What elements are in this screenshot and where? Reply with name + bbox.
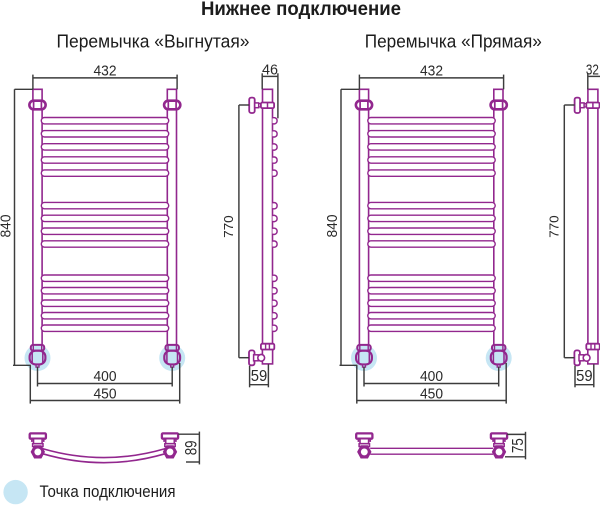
svg-text:59: 59 <box>251 368 268 385</box>
svg-text:770: 770 <box>222 215 236 238</box>
svg-text:400: 400 <box>94 368 117 385</box>
svg-text:32: 32 <box>586 62 599 79</box>
svg-text:432: 432 <box>94 62 117 79</box>
svg-text:770: 770 <box>547 215 561 238</box>
svg-text:Точка подключения: Точка подключения <box>40 482 176 501</box>
svg-text:400: 400 <box>420 368 443 385</box>
svg-text:450: 450 <box>94 386 117 403</box>
svg-text:Перемычка «Выгнутая»: Перемычка «Выгнутая» <box>57 32 250 52</box>
svg-text:46: 46 <box>262 62 278 79</box>
svg-text:432: 432 <box>420 62 443 79</box>
svg-text:Перемычка «Прямая»: Перемычка «Прямая» <box>365 32 542 52</box>
svg-text:840: 840 <box>325 215 341 238</box>
svg-text:840: 840 <box>0 215 15 238</box>
svg-text:Нижнее подключение: Нижнее подключение <box>201 0 401 20</box>
svg-text:450: 450 <box>420 386 443 403</box>
svg-text:89: 89 <box>183 441 201 456</box>
svg-text:75: 75 <box>510 438 527 453</box>
svg-text:59: 59 <box>576 368 593 385</box>
